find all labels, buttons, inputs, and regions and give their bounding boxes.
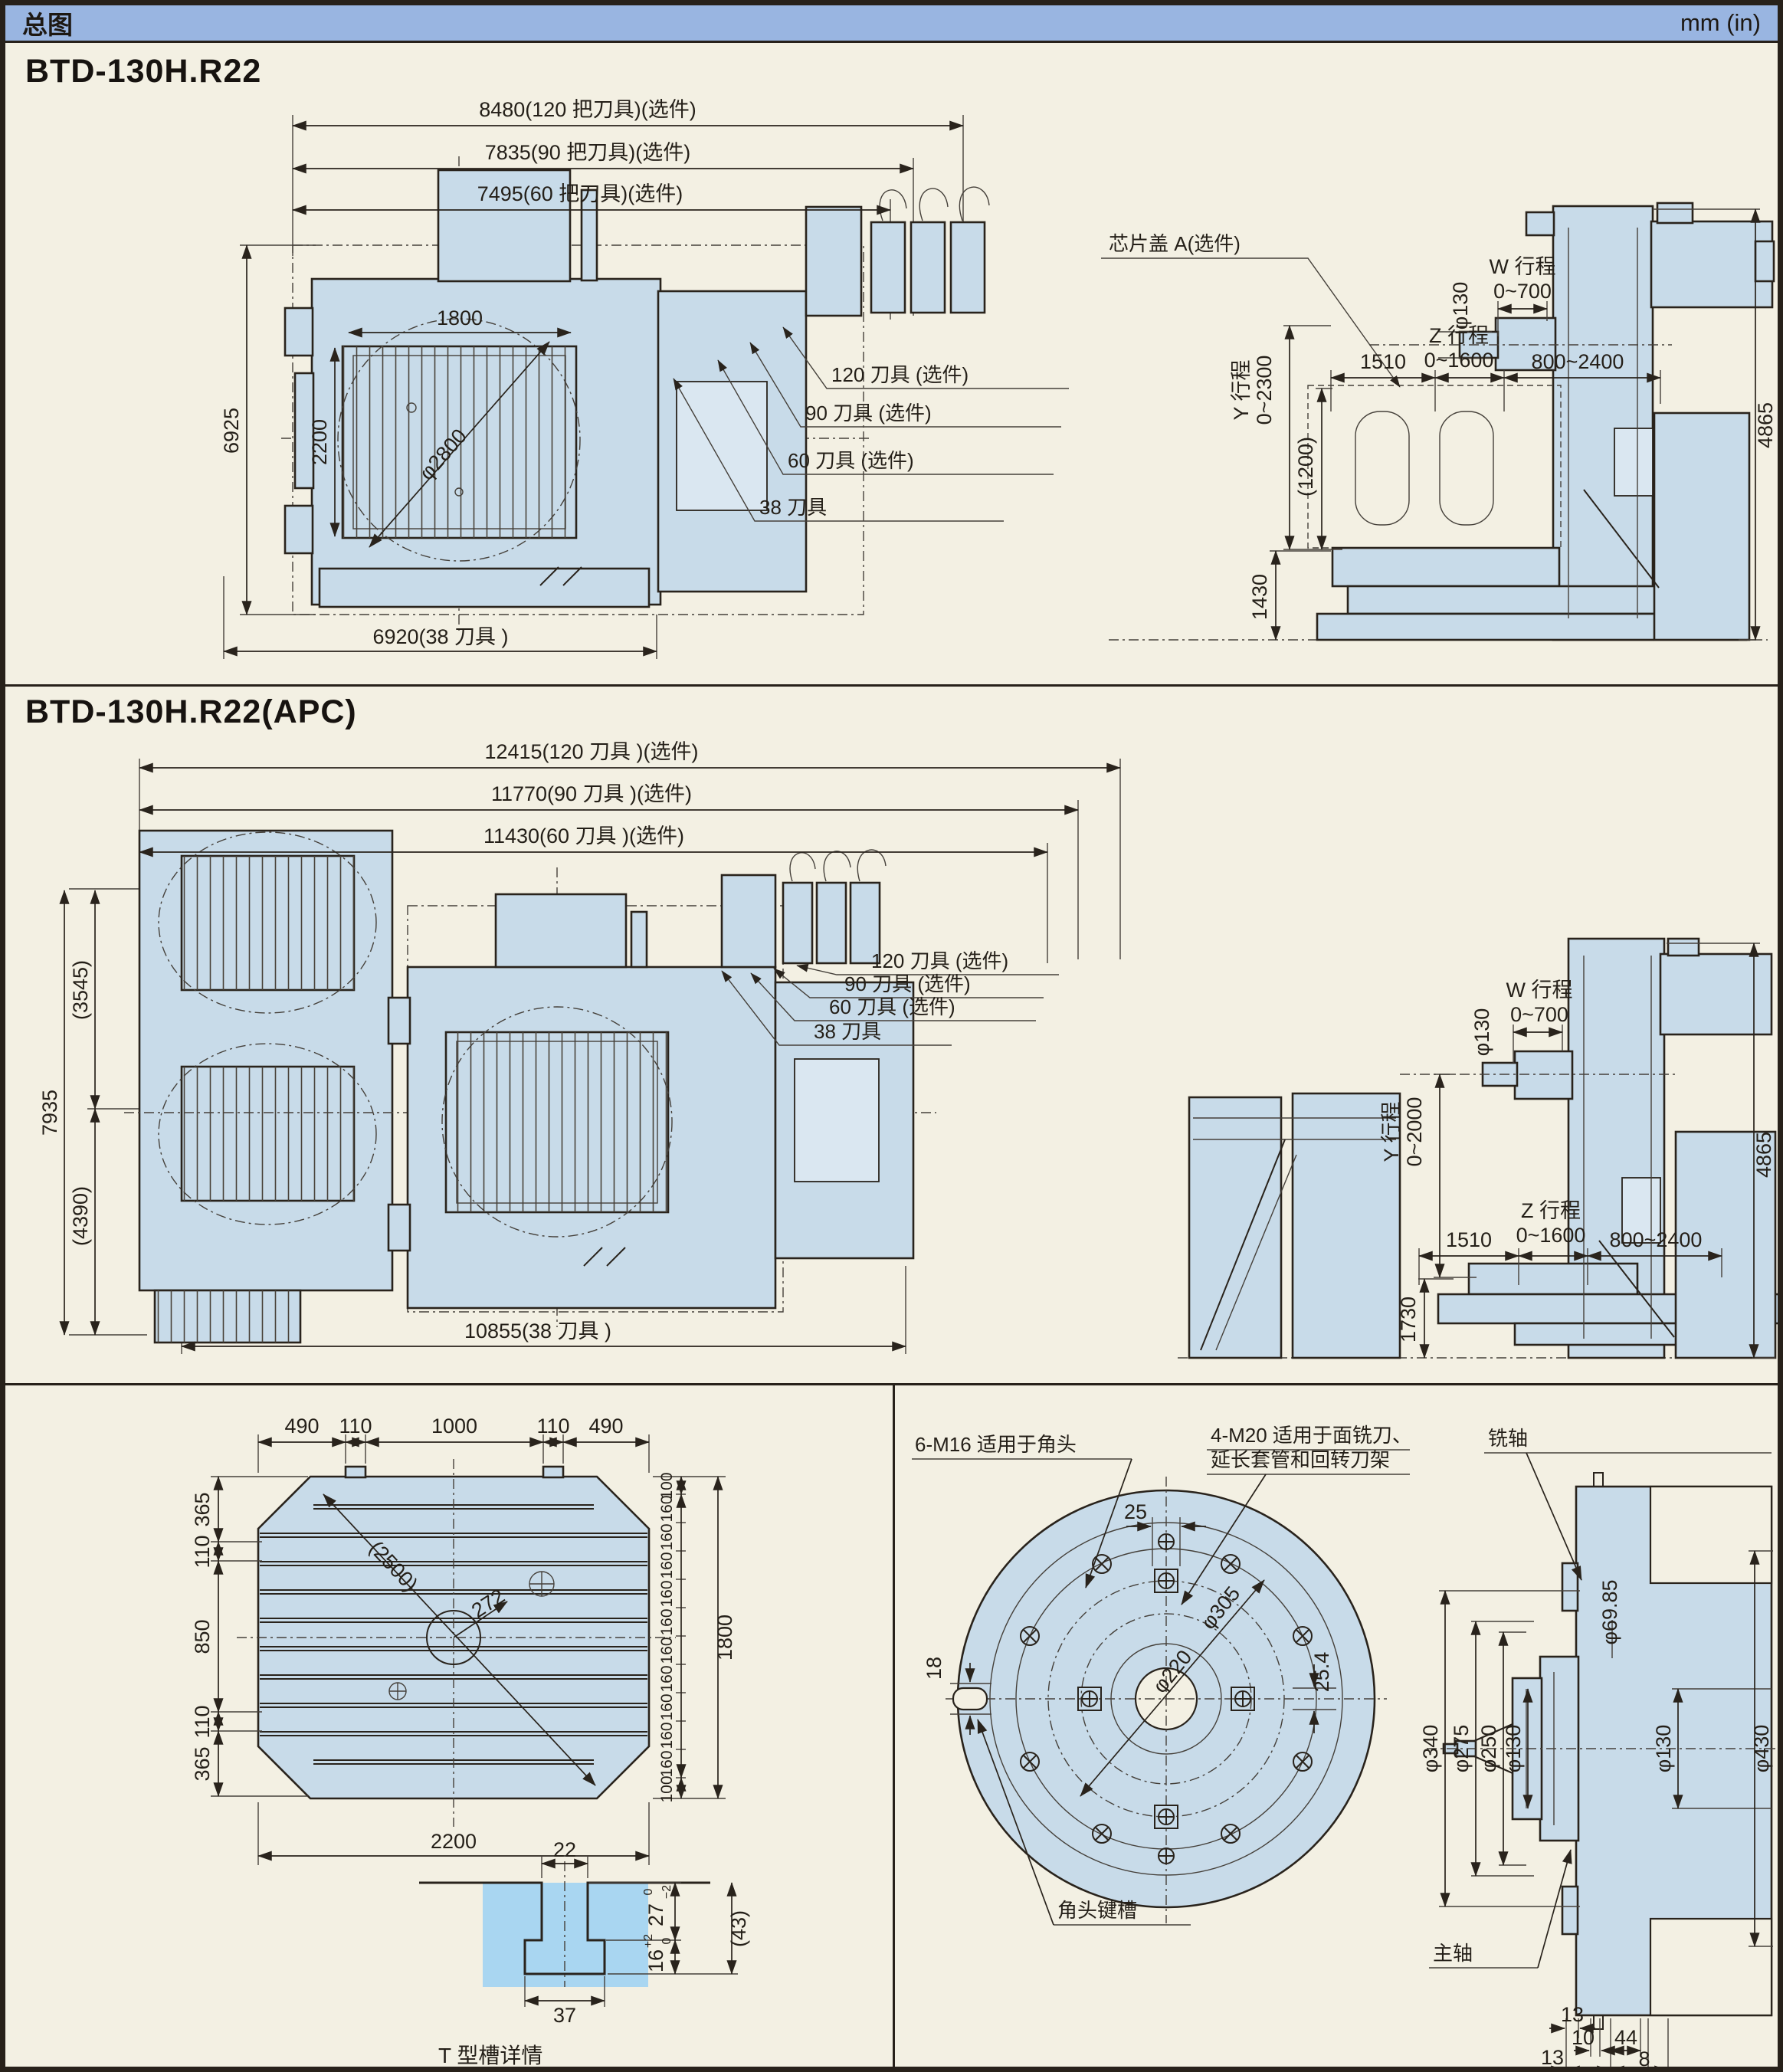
s3-flange-keyway-slot bbox=[953, 1688, 987, 1710]
svg-text:160: 160 bbox=[658, 1495, 676, 1522]
s1-tool-120: 120 刀具 (选件) bbox=[831, 363, 969, 386]
s3-tslot-37: 37 bbox=[553, 2004, 576, 2027]
s2-tool-120: 120 刀具 (选件) bbox=[871, 949, 1008, 972]
s1-w-stroke-label: W 行程 bbox=[1490, 255, 1556, 278]
svg-text:160: 160 bbox=[658, 1722, 676, 1749]
s1-y-stroke-value: 0~2300 bbox=[1253, 356, 1276, 425]
s3-tslot-16-hi: +2 bbox=[642, 1934, 655, 1948]
s3-tslot-highlight bbox=[483, 1883, 648, 1987]
s3-spindle-130l: φ130 bbox=[1502, 1725, 1525, 1773]
s2-dim-10855: 10855(38 刀具 ) bbox=[464, 1320, 611, 1343]
s1-w-stroke-value: 0~700 bbox=[1493, 280, 1552, 303]
s3-top-1000: 1000 bbox=[431, 1415, 477, 1438]
svg-text:160: 160 bbox=[658, 1580, 676, 1607]
s3-flange-18: 18 bbox=[923, 1657, 946, 1680]
s3-top-110a: 110 bbox=[339, 1415, 372, 1438]
s3-spindle-6985: φ69.85 bbox=[1598, 1579, 1621, 1644]
s3-spindle-main-label: 主轴 bbox=[1433, 1942, 1473, 1965]
s3-left-850: 850 bbox=[191, 1619, 214, 1654]
s3-tslot-caption: T 型槽详情 bbox=[438, 2044, 542, 2067]
s3-flange-m20-label2: 延长套管和回转刀架 bbox=[1211, 1448, 1390, 1471]
s1-dim-1430: 1430 bbox=[1248, 574, 1271, 620]
s1-dim-7495: 7495(60 把刀具)(选件) bbox=[477, 182, 683, 205]
s3-spindle-13a: 13 bbox=[1561, 2003, 1584, 2026]
s1-dim-6925: 6925 bbox=[220, 408, 243, 454]
s2-side-machine bbox=[1178, 939, 1783, 1358]
s3-right-chain-labels: 100 160 160 160 160 160 160 160 160 160 … bbox=[658, 1472, 676, 1802]
s2-side-drawing: W 行程 0~700 φ130 Y 行程 0~2000 Z 行程 0~1600 … bbox=[1170, 910, 1783, 1385]
s3-left-365b: 365 bbox=[191, 1746, 214, 1781]
s3-spindle-275: φ275 bbox=[1450, 1725, 1473, 1773]
s2-dim-12415: 12415(120 刀具 )(选件) bbox=[484, 740, 698, 763]
s3-tslot-27-lo: −2 bbox=[660, 1885, 674, 1899]
s1-tool-60: 60 刀具 (选件) bbox=[788, 449, 914, 472]
s2-tool-38: 38 刀具 bbox=[814, 1020, 881, 1043]
s2-tool-90: 90 刀具 (选件) bbox=[844, 972, 971, 995]
svg-text:100: 100 bbox=[658, 1472, 676, 1499]
s2-dim-11770: 11770(90 刀具 )(选件) bbox=[491, 782, 692, 805]
s1-side-machine bbox=[1109, 203, 1774, 640]
s3-left-365a: 365 bbox=[191, 1492, 214, 1526]
drawing-page: 总图 mm (in) BTD-130H.R22 BTD-130H.R22(APC… bbox=[0, 0, 1783, 2072]
s3-spindle-62: 62 bbox=[1627, 2069, 1650, 2072]
svg-text:160: 160 bbox=[658, 1637, 676, 1664]
s3-spindle-drawing: φ69.85 φ340 φ275 φ250 φ130 φ130 φ430 铣轴 … bbox=[1411, 1419, 1783, 2072]
s1-plan-machine bbox=[281, 156, 989, 634]
s3-flange-keyway-label: 角头键槽 bbox=[1057, 1899, 1137, 1922]
units-label: mm (in) bbox=[1680, 9, 1761, 37]
s1-dim-2200: 2200 bbox=[308, 419, 331, 465]
divider-s3-vertical bbox=[893, 1385, 895, 2067]
svg-text:160: 160 bbox=[658, 1693, 676, 1720]
s3-tslot-drawing: 22 37 27 0 −2 16 +2 0 (43) T 型槽详情 bbox=[335, 1844, 825, 2072]
s1-dia130: φ130 bbox=[1449, 282, 1472, 330]
s2-y-stroke-label: Y 行程 bbox=[1380, 1101, 1403, 1162]
s1-y-stroke-label: Y 行程 bbox=[1230, 359, 1253, 420]
s3-top-490b: 490 bbox=[588, 1415, 623, 1438]
svg-text:160: 160 bbox=[658, 1750, 676, 1777]
s2-dim-11430: 11430(60 刀具 )(选件) bbox=[483, 825, 684, 847]
svg-text:160: 160 bbox=[658, 1665, 676, 1692]
s1-side-drawing: 芯片盖 A(选件) W 行程 0~700 φ130 Y 行程 0~2300 (1… bbox=[1078, 159, 1783, 664]
s3-spindle-10: 10 bbox=[1572, 2026, 1595, 2049]
s1-dim-1200: (1200) bbox=[1294, 437, 1317, 497]
s2-w-stroke-label: W 行程 bbox=[1506, 979, 1573, 1002]
s1-chip-cover-label: 芯片盖 A(选件) bbox=[1109, 232, 1241, 255]
s2-plan-drawing: 12415(120 刀具 )(选件) 11770(90 刀具 )(选件) 114… bbox=[48, 729, 1166, 1381]
s3-tslot-16-lo: 0 bbox=[660, 1937, 674, 1944]
s3-tslot-27-hi: 0 bbox=[642, 1888, 655, 1895]
s1-dim-800-2400: 800~2400 bbox=[1532, 350, 1624, 373]
s3-flange-254: 25.4 bbox=[1310, 1652, 1333, 1693]
s2-y-stroke-value: 0~2000 bbox=[1403, 1097, 1426, 1167]
s1-dim-8480: 8480(120 把刀具)(选件) bbox=[479, 98, 696, 121]
s3-spindle-430: φ430 bbox=[1750, 1725, 1773, 1773]
svg-text:100: 100 bbox=[658, 1775, 676, 1802]
page-title: 总图 bbox=[22, 5, 73, 41]
s3-top-490a: 490 bbox=[284, 1415, 319, 1438]
s2-plan-apc-station bbox=[139, 831, 392, 1343]
s3-spindle-8: 8 bbox=[1638, 2047, 1650, 2070]
section2-title: BTD-130H.R22(APC) bbox=[25, 693, 357, 731]
s3-spindle-340: φ340 bbox=[1419, 1725, 1442, 1773]
s1-dim-7835: 7835(90 把刀具)(选件) bbox=[485, 141, 691, 164]
s1-dim-6920: 6920(38 刀具 ) bbox=[372, 625, 508, 648]
s3-spindle-48: 48 bbox=[1577, 2069, 1600, 2072]
svg-text:160: 160 bbox=[658, 1552, 676, 1579]
s3-spindle-13b: 13 bbox=[1541, 2046, 1564, 2069]
s1-z-stroke-label: Z 行程 bbox=[1429, 324, 1489, 347]
s1-plan-drawing: 8480(120 把刀具)(选件) 7835(90 把刀具)(选件) 7495(… bbox=[90, 78, 1070, 691]
s2-z-stroke-label: Z 行程 bbox=[1521, 1199, 1581, 1222]
s2-dim-4390: (4390) bbox=[69, 1186, 92, 1246]
s3-table-shape bbox=[237, 1459, 676, 1827]
s2-dim-800-2400: 800~2400 bbox=[1610, 1228, 1703, 1251]
svg-text:160: 160 bbox=[658, 1608, 676, 1635]
s3-spindle-mill-axis-label: 铣轴 bbox=[1488, 1427, 1528, 1450]
s3-table-drawing: 490 110 1000 110 490 365 110 850 110 365… bbox=[113, 1396, 887, 1902]
s2-dim-1510: 1510 bbox=[1446, 1228, 1492, 1251]
s1-z-stroke-value: 0~1600 bbox=[1424, 349, 1494, 372]
s3-spindle-130r: φ130 bbox=[1652, 1725, 1675, 1773]
s1-tool-38: 38 刀具 bbox=[759, 496, 827, 519]
s3-flange-drawing: 25 φ305 φ220 25.4 18 6-M16 适用于角头 4-M20 适… bbox=[906, 1419, 1411, 1948]
s3-flange-25: 25 bbox=[1124, 1500, 1147, 1523]
s2-dia130: φ130 bbox=[1470, 1008, 1493, 1057]
s3-tslot-43: (43) bbox=[727, 1910, 750, 1947]
s3-spindle-44: 44 bbox=[1614, 2026, 1637, 2049]
s3-spindle-250: φ250 bbox=[1477, 1725, 1500, 1773]
s2-tool-60: 60 刀具 (选件) bbox=[829, 995, 955, 1018]
s1-dim-4865: 4865 bbox=[1754, 402, 1777, 448]
s3-flange-m20-label1: 4-M20 适用于面铣刀、 bbox=[1211, 1424, 1412, 1447]
s1-dim-1800: 1800 bbox=[437, 307, 483, 329]
s2-dim-4865: 4865 bbox=[1752, 1132, 1775, 1178]
s2-dim-1730: 1730 bbox=[1397, 1297, 1420, 1343]
s3-left-110b: 110 bbox=[191, 1705, 214, 1738]
s3-flange-m16-label: 6-M16 适用于角头 bbox=[915, 1433, 1077, 1456]
svg-text:160: 160 bbox=[658, 1523, 676, 1550]
s3-tslot-16: 16 bbox=[644, 1949, 667, 1972]
header-bar: 总图 mm (in) bbox=[5, 5, 1778, 43]
s2-dim-3545: (3545) bbox=[69, 960, 92, 1020]
s2-w-stroke-value: 0~700 bbox=[1510, 1003, 1568, 1026]
s3-tslot-27: 27 bbox=[644, 1903, 667, 1926]
s2-dim-7935: 7935 bbox=[38, 1090, 61, 1136]
s1-tool-90: 90 刀具 (选件) bbox=[805, 402, 932, 425]
s3-left-110a: 110 bbox=[191, 1535, 214, 1568]
s3-tslot-22: 22 bbox=[553, 1838, 576, 1861]
s2-z-stroke-value: 0~1600 bbox=[1516, 1224, 1586, 1247]
s3-top-110b: 110 bbox=[536, 1415, 569, 1438]
s1-dim-1510: 1510 bbox=[1360, 350, 1406, 373]
s3-dim-1800: 1800 bbox=[713, 1615, 736, 1661]
